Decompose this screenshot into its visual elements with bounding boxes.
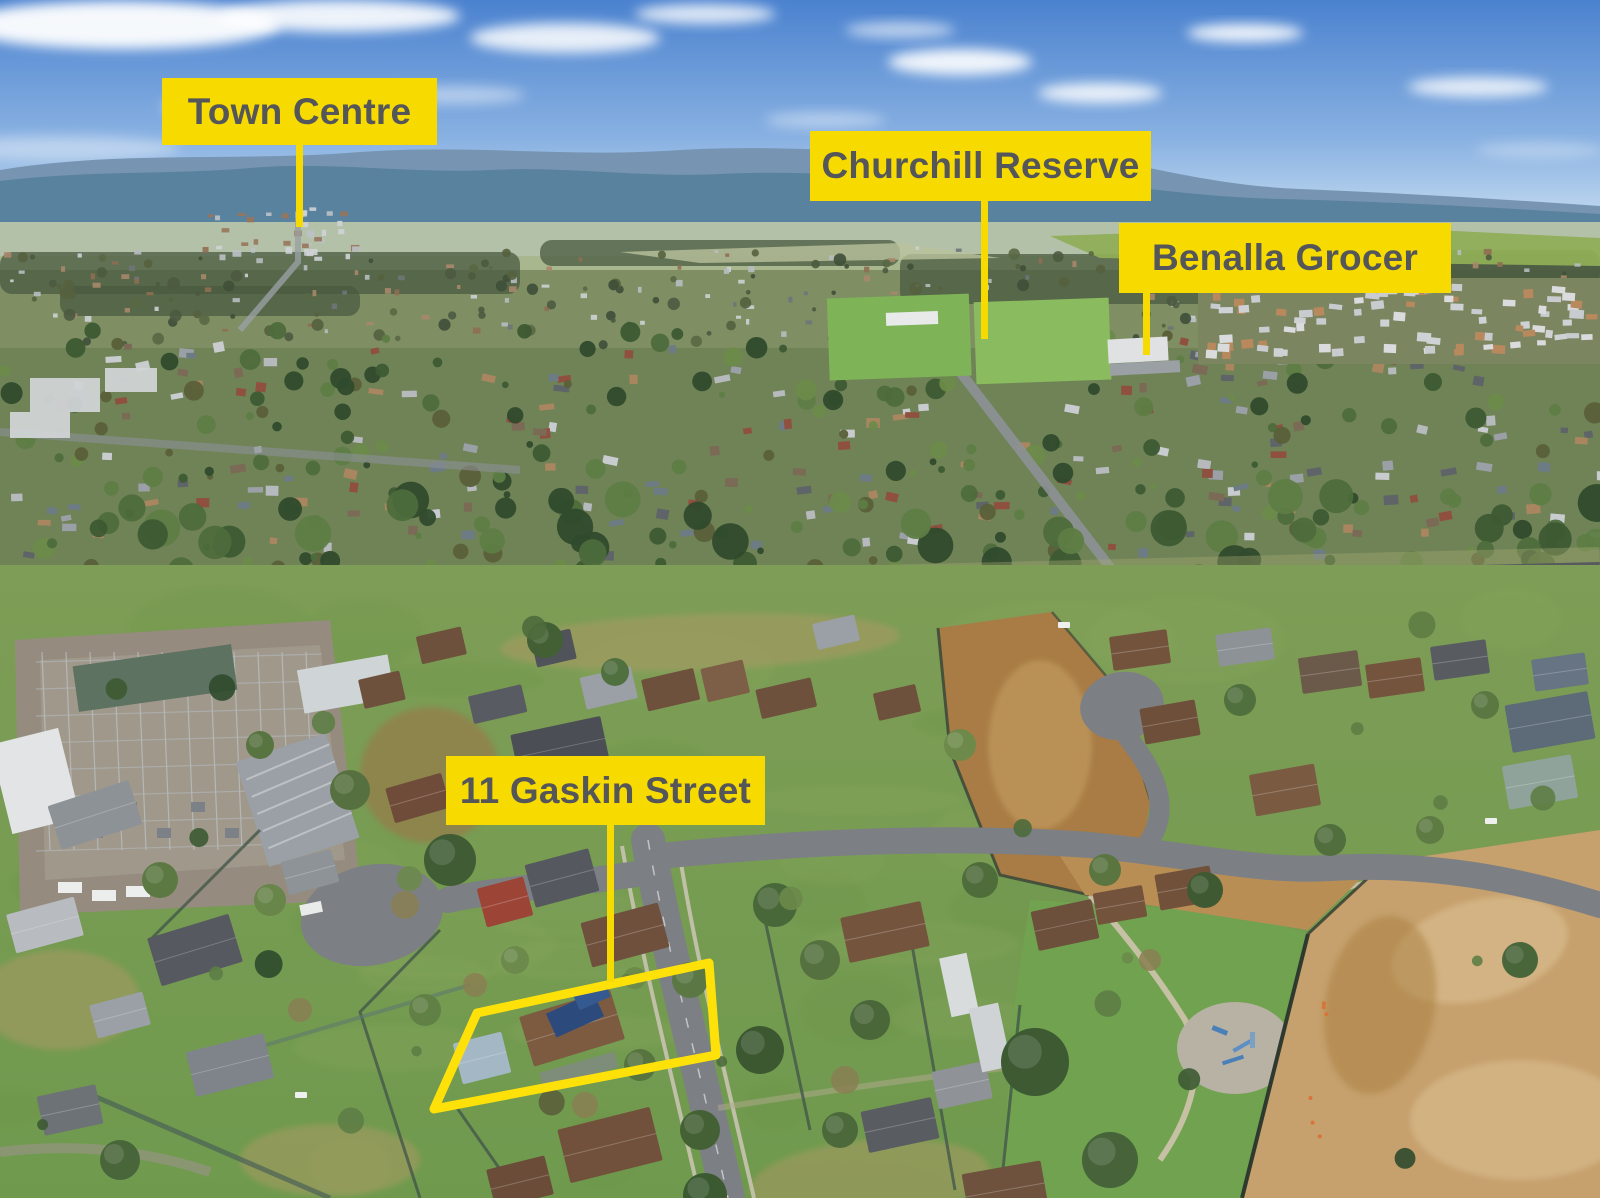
callout-churchill-reserve-label: Churchill Reserve [821,145,1139,187]
leader-town-centre [296,144,303,227]
property-boundary-outline [0,0,1600,1198]
callout-property-address-label: 11 Gaskin Street [460,770,751,812]
callout-churchill-reserve: Churchill Reserve [810,131,1151,201]
callout-benalla-grocer-label: Benalla Grocer [1152,237,1418,279]
leader-churchill-reserve [981,201,988,339]
callout-town-centre: Town Centre [162,78,437,145]
callout-benalla-grocer: Benalla Grocer [1119,223,1451,293]
leader-benalla-grocer [1143,292,1150,355]
leader-property-address [607,824,614,982]
callout-town-centre-label: Town Centre [188,91,412,133]
callout-property-address: 11 Gaskin Street [446,756,765,825]
aerial-photo: Town Centre Churchill Reserve Benalla Gr… [0,0,1600,1198]
